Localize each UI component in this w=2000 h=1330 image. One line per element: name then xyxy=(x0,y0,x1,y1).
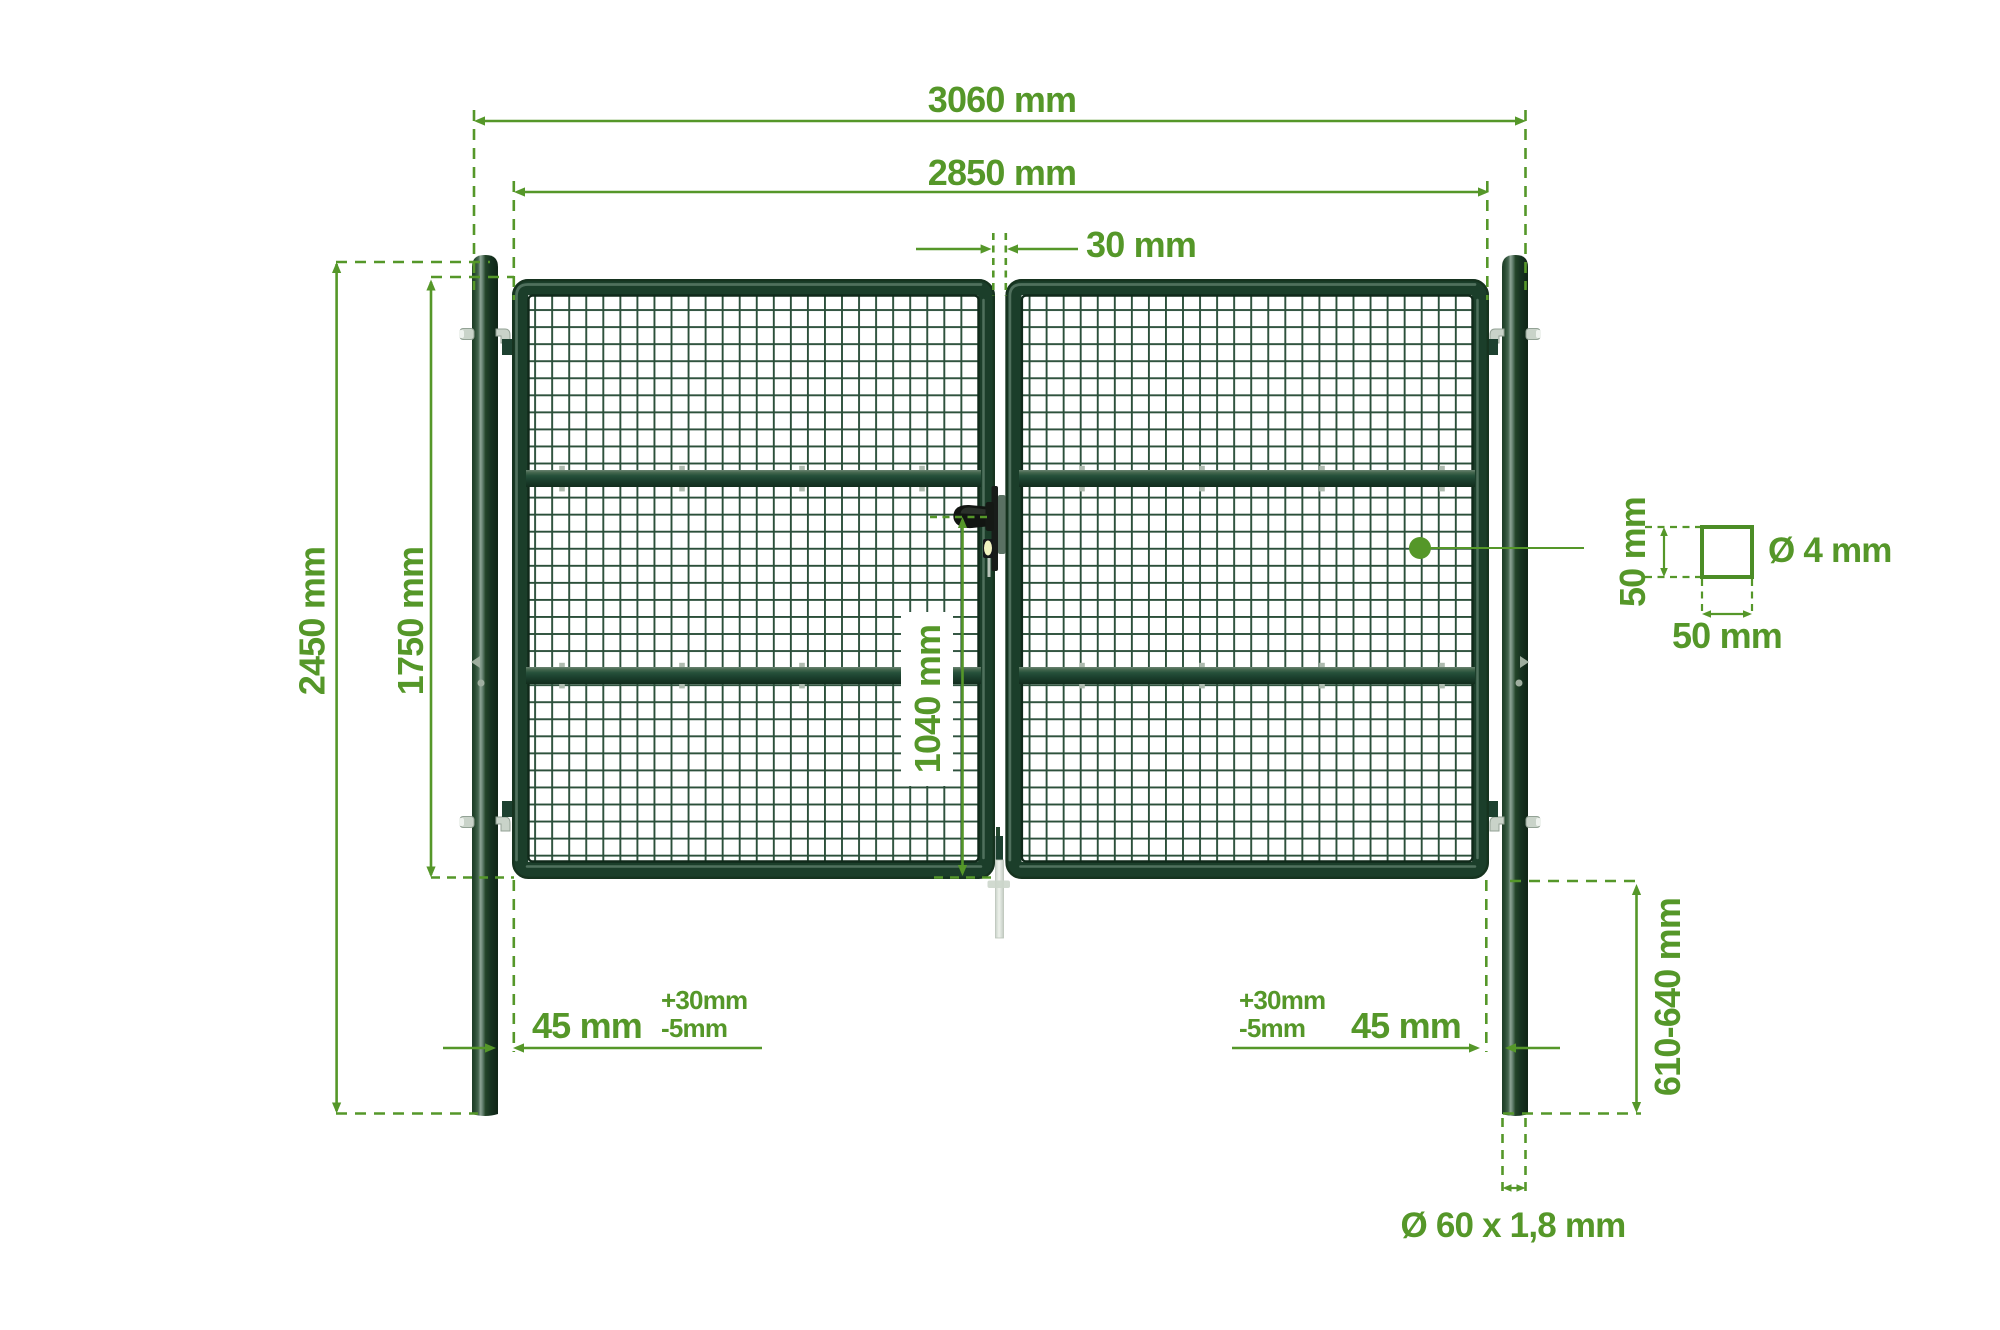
svg-text:1040 mm: 1040 mm xyxy=(907,625,948,774)
svg-text:-5mm: -5mm xyxy=(1239,1013,1305,1043)
svg-text:45 mm: 45 mm xyxy=(532,1005,642,1046)
svg-text:+30mm: +30mm xyxy=(661,985,747,1015)
svg-text:50 mm: 50 mm xyxy=(1672,615,1782,656)
svg-text:2450 mm: 2450 mm xyxy=(292,547,333,696)
svg-text:Ø 60 x 1,8 mm: Ø 60 x 1,8 mm xyxy=(1400,1206,1625,1245)
svg-text:+30mm: +30mm xyxy=(1239,985,1325,1015)
svg-text:45 mm: 45 mm xyxy=(1351,1005,1461,1046)
svg-text:2850 mm: 2850 mm xyxy=(928,152,1077,193)
svg-text:1750 mm: 1750 mm xyxy=(390,547,431,696)
svg-text:30 mm: 30 mm xyxy=(1086,224,1196,265)
svg-text:610-640 mm: 610-640 mm xyxy=(1647,898,1688,1096)
svg-text:-5mm: -5mm xyxy=(661,1013,727,1043)
svg-text:50 mm: 50 mm xyxy=(1612,497,1653,607)
svg-text:Ø 4 mm: Ø 4 mm xyxy=(1768,531,1892,570)
svg-text:3060 mm: 3060 mm xyxy=(928,79,1077,120)
